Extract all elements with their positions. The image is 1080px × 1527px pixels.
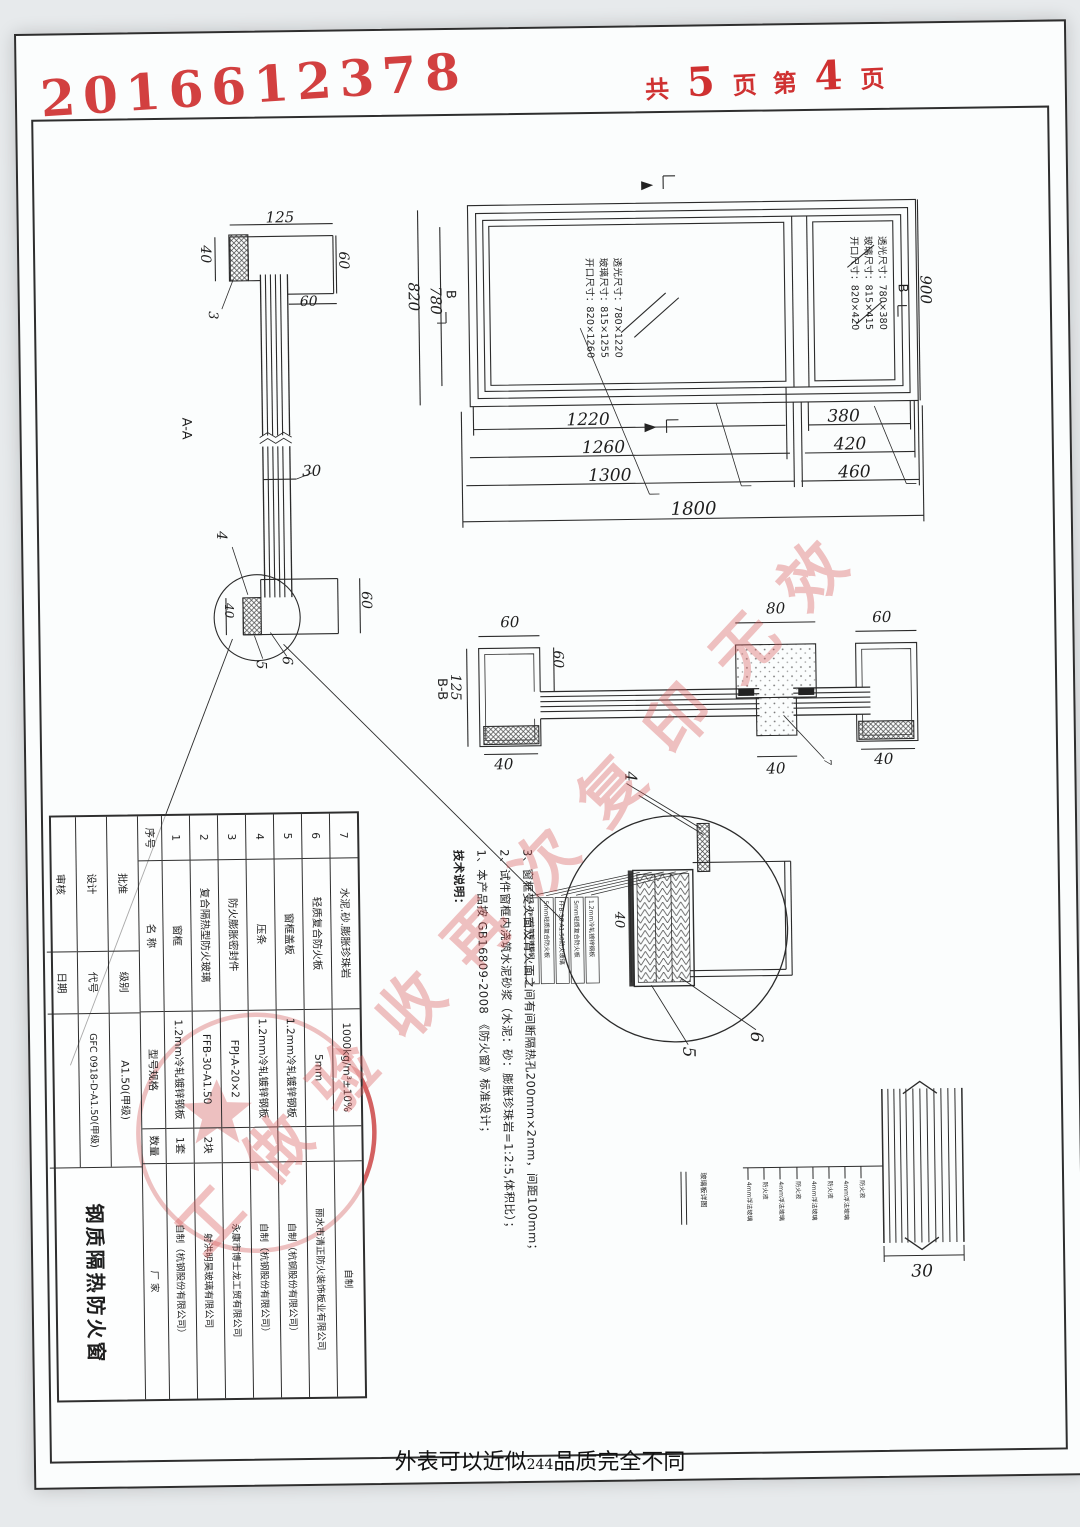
- bb-dim-40c: 40: [766, 759, 785, 777]
- drawing-sheet: 2016612378 共5页第4页: [14, 19, 1080, 1490]
- bb-leader-7: 7: [821, 759, 832, 766]
- bottom-caption: 外表可以近似244品质完全不同: [0, 1444, 1080, 1476]
- title-row-design: 设计 代号 GFC 0918-D-A1.50(甲级): [75, 817, 111, 1167]
- bb-dim-60i: 60: [550, 650, 566, 668]
- aa-dim-30: 30: [302, 462, 321, 480]
- glass-detail-title: 玻璃板详图: [698, 1172, 708, 1207]
- section-b-b-drawing: [466, 620, 919, 837]
- scanned-drawing-page: 2016612378 共5页第4页: [0, 0, 1080, 1527]
- glass-layer-6: 防火液: [826, 1181, 835, 1199]
- pane-label-light: 透光尺寸：780×1220: [611, 257, 626, 358]
- dim-1220: 1220: [566, 410, 610, 431]
- product-name: 钢质隔热防火窗: [50, 1166, 145, 1400]
- value-date: [48, 1014, 80, 1167]
- row3-qty: [222, 1128, 249, 1163]
- row5-qty: [278, 1127, 305, 1162]
- row3-spec: FPJ-A-20×2: [221, 1011, 250, 1129]
- row5-maker: 自制（杭钢股份有限公司）: [279, 1162, 309, 1398]
- row1-spec: 1.2mm冷轧镀锌钢板: [165, 1011, 194, 1129]
- dim-1260: 1260: [582, 438, 626, 459]
- detail-leader-5: 5: [678, 1047, 698, 1058]
- dim-900: 900: [916, 275, 934, 304]
- row5-no: 5: [274, 814, 302, 859]
- label-code: 代号: [78, 952, 109, 1014]
- row5-name: 窗框盖板: [275, 859, 304, 1010]
- aa-dim-40b: 40: [222, 603, 236, 618]
- caption-prefix: 外表可以近似: [395, 1450, 527, 1475]
- glass-buildup-detail: [680, 1081, 964, 1265]
- row4-no: 4: [246, 814, 274, 859]
- dim-380: 380: [827, 406, 860, 426]
- pane2-label-opening: 开口尺寸：820×420: [848, 236, 863, 330]
- aa-dim-125: 125: [265, 208, 294, 226]
- row6-spec: 5mm: [305, 1009, 334, 1127]
- bb-dim-60r: 60: [872, 608, 891, 626]
- row2-name: 复合隔热型防火玻璃: [191, 860, 220, 1011]
- aa-dim-60b: 60: [300, 294, 318, 310]
- row3-name: 防火膨胀密封件: [219, 860, 248, 1011]
- row7-qty: [334, 1126, 361, 1161]
- pane2-label-glass: 玻璃尺寸：815×415: [862, 236, 877, 330]
- dim-780: 780: [427, 286, 445, 315]
- row7-name: 水泥.砂.膨胀珍珠岩: [331, 858, 360, 1009]
- dim-1300: 1300: [588, 465, 632, 486]
- row1-name: 窗框: [163, 860, 192, 1011]
- caption-number: 244: [527, 1457, 554, 1473]
- dim-460: 460: [838, 462, 871, 482]
- bb-dim-60l: 60: [500, 613, 519, 631]
- row6-no: 6: [302, 814, 330, 859]
- aa-dim-40: 40: [197, 245, 213, 263]
- section-aa-label: A-A: [178, 418, 193, 440]
- glass-layer-2: 防火液: [761, 1182, 770, 1200]
- label-design: 设计: [76, 817, 108, 952]
- dim-820: 820: [405, 282, 423, 311]
- pane-label-glass: 玻璃尺寸：815×1255: [597, 258, 612, 359]
- header-qty: 数量: [142, 1129, 165, 1164]
- bb-dim-40r: 40: [874, 750, 893, 768]
- detail-callout-3: FFB-30-A1.50防火玻璃: [557, 900, 567, 964]
- row5-spec: 1.2mm冷轧镀锌钢板: [277, 1010, 306, 1128]
- caption-suffix: 品质完全不同: [553, 1450, 685, 1475]
- row4-name: 压条: [247, 859, 276, 1010]
- row2-qty: 2块: [194, 1128, 221, 1163]
- row7-no: 7: [330, 813, 358, 858]
- aa-leader-5: 5: [253, 661, 269, 670]
- header-maker: 厂 家: [143, 1164, 169, 1400]
- dim-1800: 1800: [671, 498, 717, 520]
- row4-maker: 自制（杭钢股份有限公司）: [251, 1162, 281, 1398]
- dim-420: 420: [834, 434, 867, 454]
- glass-layer-3: 4mm浮法玻璃: [777, 1181, 787, 1221]
- row7-maker: 自制: [335, 1161, 365, 1397]
- notes-title: 技术说明：: [450, 850, 467, 910]
- row2-spec: FFB-30-A1.50: [193, 1011, 222, 1129]
- aa-leader-6: 6: [279, 656, 295, 665]
- row2-no: 2: [190, 815, 218, 860]
- glass-layer-7: 4mm浮法玻璃: [842, 1180, 852, 1220]
- pane2-label-light: 透光尺寸：780×380: [876, 236, 891, 330]
- marker-b-right: B: [895, 284, 910, 293]
- header-name: 名 称: [139, 861, 164, 1012]
- row1-no: 1: [162, 816, 190, 861]
- row1-qty: 1套: [166, 1128, 193, 1163]
- row3-maker: 永康市博士龙工贸有限公司: [223, 1162, 253, 1398]
- row7-spec: 1000kg/m³±10%: [333, 1009, 362, 1127]
- row6-name: 轻质复合防火板: [303, 858, 332, 1009]
- pane-label-opening: 开口尺寸：820×1260: [583, 258, 598, 359]
- row2-maker: 射洪明昊玻璃有限公司: [195, 1163, 225, 1399]
- header-spec: 型号规格: [141, 1012, 166, 1130]
- label-approve: 批准: [107, 816, 139, 951]
- aa-leader-4: 4: [213, 531, 229, 540]
- glass-layer-8: 防火液: [858, 1180, 867, 1198]
- value-grade: A1.50(甲级): [110, 1013, 142, 1166]
- bb-leader-4: 4: [621, 771, 640, 781]
- title-row-check: 审核 日期: [45, 817, 80, 1167]
- label-grade: 级别: [109, 951, 140, 1013]
- parts-table-rotated: 7 水泥.砂.膨胀珍珠岩 1000kg/m³±10% 自制 6 轻质复合防火板 …: [49, 811, 367, 1402]
- label-check: 审核: [45, 817, 77, 952]
- row1-maker: 自制（杭钢股份有限公司）: [167, 1163, 197, 1399]
- label-date: 日期: [47, 952, 78, 1014]
- glass-dim-30: 30: [911, 1261, 933, 1281]
- aa-dim-60br: 60: [358, 591, 374, 609]
- row3-no: 3: [218, 815, 246, 860]
- glass-layer-4: 防火液: [794, 1181, 803, 1199]
- title-row-approve: 批准 级别 A1.50(甲级): [106, 816, 142, 1166]
- detail-dim-40: 40: [611, 912, 626, 929]
- header-no: 序号: [138, 816, 162, 861]
- bb-dim-80: 80: [766, 599, 785, 617]
- parts-table: 7 水泥.砂.膨胀珍珠岩 1000kg/m³±10% 自制 6 轻质复合防火板 …: [49, 811, 367, 1402]
- row6-maker: 丽水市清正防火装饰板业有限公司: [307, 1161, 337, 1397]
- detail-leader-6: 6: [746, 1032, 766, 1043]
- row4-qty: [250, 1127, 277, 1162]
- marker-b-left: B: [443, 290, 458, 299]
- glass-layer-5: 4mm浮法玻璃: [810, 1181, 820, 1221]
- detail-callout-5: 1.2mm冷轧镀锌钢板: [587, 900, 597, 957]
- row6-qty: [306, 1127, 333, 1162]
- aa-leader-3: 3: [205, 311, 220, 319]
- glass-layer-1: 4mm浮法玻璃: [745, 1182, 755, 1222]
- bb-dim-125: 125: [447, 674, 463, 701]
- bb-dim-40l: 40: [494, 755, 513, 773]
- detail-callout-2: 5mm轻质复合防火板: [542, 901, 552, 959]
- value-code: GFC 0918-D-A1.50(甲级): [79, 1014, 111, 1167]
- aa-dim-60r: 60: [335, 251, 351, 269]
- detail-callout-4: 5mm轻质复合防火板: [572, 900, 582, 958]
- title-block: 批准 级别 A1.50(甲级) 设计 代号 GFC 0918-D-A1.50(甲…: [45, 816, 145, 1400]
- row4-spec: 1.2mm冷轧镀锌钢板: [249, 1010, 278, 1128]
